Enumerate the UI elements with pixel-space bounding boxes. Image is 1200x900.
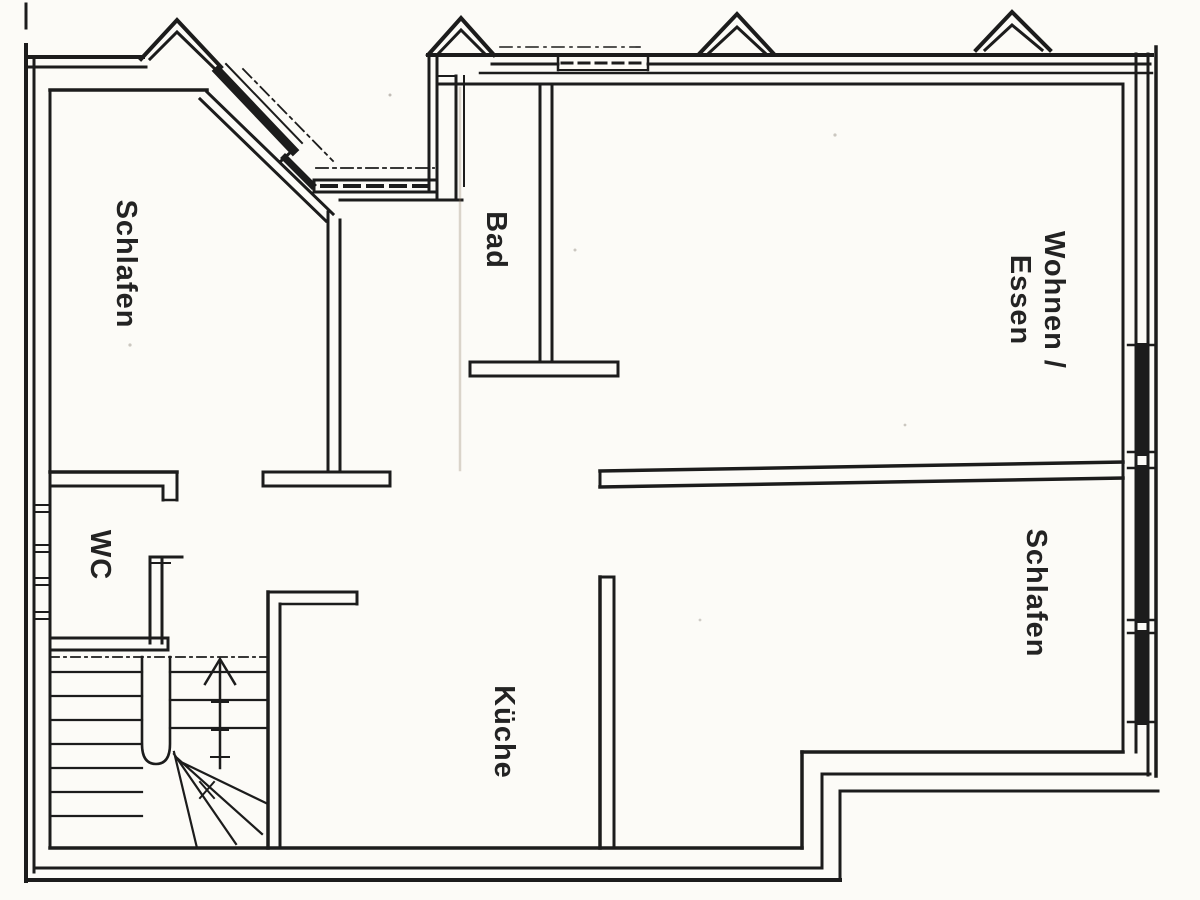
- room-label-schlafen-right: Schlafen: [1019, 529, 1053, 658]
- stairs: [50, 657, 268, 848]
- room-label-bad: Bad: [479, 211, 513, 269]
- building-outline: [26, 4, 1158, 881]
- floor-plan-page: Schlafen Bad Wohnen / Essen Schlafen WC …: [0, 0, 1200, 900]
- right-wall-windows: [1128, 345, 1155, 722]
- room-label-schlafen-left: Schlafen: [109, 200, 143, 329]
- room-label-wc: WC: [83, 530, 117, 580]
- canted-bay-wall: [218, 58, 464, 200]
- gable-dormers: [141, 12, 1050, 68]
- interior-walls: [36, 84, 1123, 848]
- room-label-wohnen-essen-line1: Wohnen /: [1037, 231, 1071, 369]
- room-label-wohnen-essen: Wohnen / Essen: [1003, 231, 1071, 369]
- scan-artifacts: [128, 88, 906, 621]
- room-label-kueche: Küche: [487, 685, 521, 779]
- room-label-wohnen-essen-line2: Essen: [1003, 231, 1037, 369]
- top-wall-window: [558, 56, 648, 70]
- floor-plan-drawing: [0, 0, 1200, 900]
- stairs-direction-arrow-icon: [205, 659, 235, 768]
